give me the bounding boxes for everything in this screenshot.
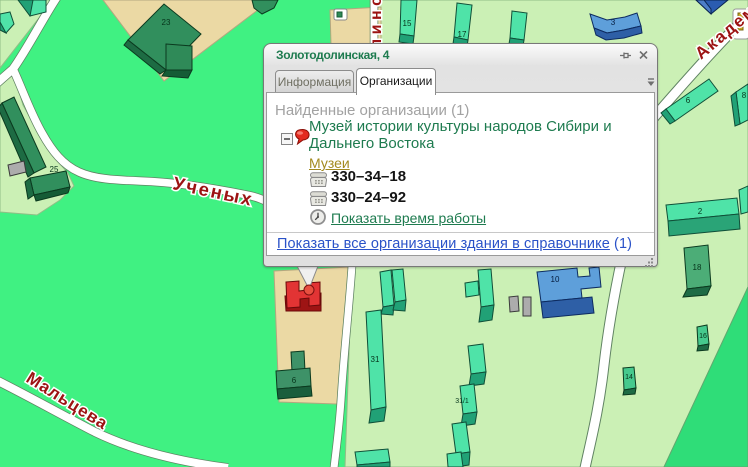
svg-text:23: 23 [162,18,171,27]
svg-text:10: 10 [551,275,560,284]
svg-text:8: 8 [742,91,747,100]
svg-text:2: 2 [698,207,703,216]
svg-text:3: 3 [611,18,616,27]
svg-text:16: 16 [699,333,707,340]
svg-text:6: 6 [292,376,297,385]
svg-text:31/1: 31/1 [455,398,469,405]
svg-text:17: 17 [458,30,467,39]
svg-text:6: 6 [686,96,691,105]
svg-text:15: 15 [403,19,412,28]
svg-text:линская: линская [368,0,385,49]
svg-text:18: 18 [693,263,702,272]
svg-text:31: 31 [371,355,380,364]
svg-text:14: 14 [625,374,633,381]
svg-text:25: 25 [50,165,59,174]
